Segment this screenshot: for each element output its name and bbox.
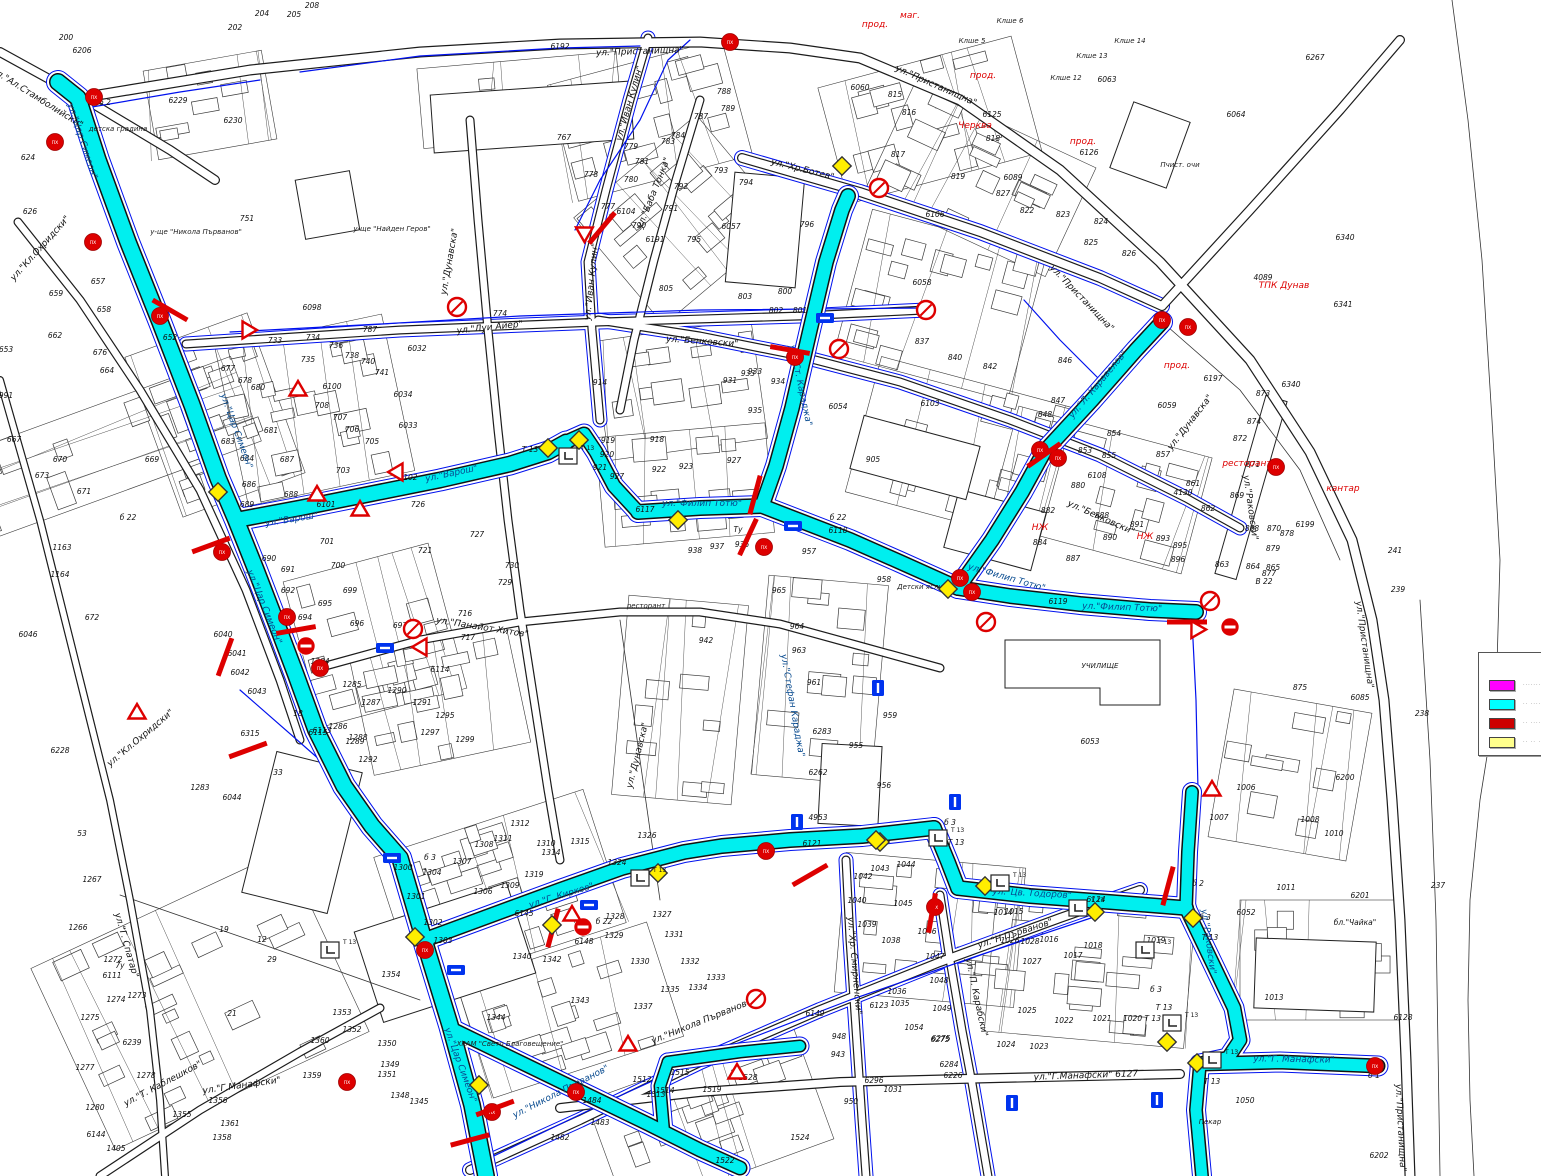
marker-tri <box>620 1036 637 1051</box>
street-name: ул."Г. Манафски" <box>1252 1054 1335 1065</box>
parcel-number: 955 <box>849 741 864 750</box>
utility-line <box>1192 620 1198 790</box>
parcel-number: 1304 <box>422 868 441 877</box>
parcel-number: 741 <box>375 368 389 377</box>
parcel-number: 6098 <box>302 303 321 312</box>
parcel-number: 699 <box>343 586 358 595</box>
parcel-number: 957 <box>802 547 817 556</box>
fitting-box-icon <box>1163 1015 1181 1031</box>
parcel-number: 1353 <box>332 1008 351 1017</box>
hydrant-code: ПХ <box>219 550 225 556</box>
building <box>271 408 295 422</box>
building <box>0 515 2 535</box>
parcel-number: 1344 <box>486 1013 505 1022</box>
valve-diamond-icon <box>1158 1033 1176 1051</box>
parcel-number: 1047 <box>925 952 944 961</box>
no-entry-bar <box>578 926 589 929</box>
parcel-number: 959 <box>883 711 898 720</box>
parcel-number: 1021 <box>1092 1014 1111 1023</box>
marker-hydrant: ПХ <box>1367 1058 1384 1075</box>
parcel-number: 6296 <box>864 1076 883 1085</box>
parcel-number: 708 <box>315 401 330 410</box>
parcel-number: 12 <box>257 935 267 944</box>
parcel-number: 6192 <box>550 42 569 51</box>
parcel-number: 1350 <box>377 1039 396 1048</box>
parcel-number: 18 <box>293 709 303 718</box>
parcel-number: 819 <box>951 172 966 181</box>
building <box>991 290 1022 315</box>
no-entry-bar <box>301 645 312 648</box>
parcel-number: 19 <box>219 925 229 934</box>
lot-line <box>48 958 137 1141</box>
parcel-number: 882 <box>1041 506 1056 515</box>
marker-hydrant: ПХ <box>85 234 102 251</box>
parcel-number: 1301 <box>406 892 425 901</box>
sign-blue-dash <box>380 647 390 649</box>
parcel-number: 1292 <box>358 755 377 764</box>
info-sign-bar <box>954 797 956 807</box>
parcel-number: 1008 <box>1300 815 1319 824</box>
parcel-number: 6144 <box>86 1130 105 1139</box>
marker-noentry2 <box>404 620 422 638</box>
parcel-number: 733 <box>268 336 283 345</box>
parcel-number: 6121 <box>802 839 821 848</box>
building <box>1292 713 1326 734</box>
parcel-number: 943 <box>831 1050 846 1059</box>
major-building <box>1110 102 1190 188</box>
info-sign-bar <box>877 683 879 693</box>
marker-bluebox <box>447 965 465 975</box>
parcel-number: 1011 <box>1276 883 1295 892</box>
sign-blue-dash <box>788 525 798 527</box>
parcel-number: 950 <box>844 1097 859 1106</box>
parcel-number: 6042 <box>230 668 249 677</box>
parcel-number: 717 <box>461 633 476 642</box>
parcel-number: 862 <box>1201 504 1216 513</box>
parcel-number: 1334 <box>688 983 707 992</box>
parcel-number: 726 <box>411 500 426 509</box>
parcel-number: 767 <box>557 133 572 142</box>
parcel-number: 1273 <box>127 991 146 1000</box>
parcel-number: 6239 <box>122 1038 141 1047</box>
parcel-number: 652 <box>163 333 178 342</box>
parcel-number: 6044 <box>222 793 241 802</box>
marker-hydrant: ПХ <box>568 1084 585 1101</box>
fitting-box-icon <box>1069 900 1087 916</box>
building <box>689 384 722 407</box>
parcel-number: 1283 <box>190 783 209 792</box>
parcel-number: 827 <box>996 189 1011 198</box>
poi-label: ресторант <box>1221 459 1272 469</box>
parcel-number: 6199 <box>1295 520 1314 529</box>
poi-label: прод. <box>970 71 996 81</box>
parcel-number: Т 13 <box>522 445 539 454</box>
parcel-number: 857 <box>1156 450 1171 459</box>
parcel-number: 963 <box>792 646 807 655</box>
parcel-number: 1311 <box>493 834 512 843</box>
fitting-code: Т 13 <box>1224 1049 1238 1056</box>
fitting-code: Т 13 <box>950 827 964 834</box>
parcel-number: 1331 <box>664 930 683 939</box>
parcel-number: 29 <box>267 955 277 964</box>
legend-red-label: ·· ···· <box>1523 720 1541 726</box>
parcel-number: 6104 <box>616 207 635 216</box>
building <box>1140 540 1174 566</box>
building <box>866 239 894 256</box>
parcel-number: 1348 <box>390 1091 409 1100</box>
marker-tri <box>1204 781 1221 796</box>
landmark-label: у-ще "Найден Геров" <box>352 225 430 233</box>
parcel-number: 1043 <box>870 864 889 873</box>
building <box>994 969 1025 991</box>
parcel-number: 4130 <box>1173 488 1192 497</box>
parcel-number: 1266 <box>68 923 87 932</box>
parcel-number: 1300 <box>393 863 412 872</box>
parcel-number: 6033 <box>398 421 417 430</box>
hydrant-code: ПХ <box>957 576 963 582</box>
parcel-number: 670 <box>53 455 68 464</box>
parcel-number: 6115 <box>308 728 327 737</box>
parcel-number: 890 <box>1103 533 1118 542</box>
parcel-number: 817 <box>891 150 906 159</box>
parcel-number: 6053 <box>1080 737 1099 746</box>
parcel-number: 239 <box>1391 585 1406 594</box>
parcel-number: 958 <box>877 575 892 584</box>
marker-noentry <box>297 637 315 655</box>
legend-title: ····· <box>1489 663 1541 669</box>
building <box>651 379 684 405</box>
building <box>901 239 926 260</box>
legend-cyan-swatch <box>1489 699 1515 710</box>
fitting-code: Т 13 <box>1157 939 1171 946</box>
parcel-number: 1038 <box>881 936 900 945</box>
parcel-number: 1326 <box>637 831 656 840</box>
parcel-number: 6063 <box>1097 75 1116 84</box>
hydrant-code: ПХ <box>727 40 733 46</box>
building <box>1224 741 1251 762</box>
parcel-number: 1302 <box>423 918 442 927</box>
parcel-number: 1332 <box>680 957 699 966</box>
parcel-number: 727 <box>470 530 485 539</box>
parcel-number: 778 <box>584 170 599 179</box>
marker-whitebox: Т 13 <box>321 939 356 958</box>
parcel-number: 1308 <box>474 840 493 849</box>
legend-red-swatch <box>1489 718 1515 729</box>
fitting-box-icon <box>559 448 577 464</box>
parcel-number: 6032 <box>407 344 426 353</box>
landmark-label: Клше 12 <box>1050 74 1082 82</box>
parcel-number: 6119 <box>1048 597 1067 606</box>
building <box>192 932 223 958</box>
parcel-number: Т 13 <box>948 838 965 847</box>
parcel-number: 1045 <box>893 899 912 908</box>
parcel-number: 691 <box>281 565 295 574</box>
parcel-number: 6100 <box>322 382 341 391</box>
parcel-number: 1018 <box>1083 941 1102 950</box>
parcel-number: 869 <box>1230 491 1245 500</box>
marker-bar <box>791 863 828 887</box>
parcel-number: 1330 <box>630 957 649 966</box>
parcel-number: 238 <box>1415 709 1430 718</box>
parcel-number: 1277 <box>75 1063 94 1072</box>
info-sign-bar <box>1156 1095 1158 1105</box>
building <box>837 608 865 630</box>
parcel-number: 1289 <box>345 737 364 746</box>
street-name: ул."Филип Тотю" <box>661 499 742 509</box>
parcel-number: б 22 <box>830 513 847 522</box>
landmark-label: Клше 5 <box>959 37 986 45</box>
marker-hydrant: ПХ <box>47 134 64 151</box>
parcel-number: 6041 <box>227 649 246 658</box>
landmark-label: у-ще "Никола Първанов" <box>149 228 242 236</box>
building <box>440 674 463 699</box>
parcel-number: 1349 <box>380 1060 399 1069</box>
building <box>975 254 993 270</box>
landmark-label: детска градина <box>88 125 147 133</box>
parcel-number: 781 <box>635 157 649 166</box>
fitting-code: Т 13 <box>1184 1012 1198 1019</box>
parcel-number: 818 <box>986 134 1001 143</box>
parcel-number: 854 <box>1107 429 1122 438</box>
parcel-number: б 3 <box>944 818 956 827</box>
building <box>1277 911 1293 929</box>
building <box>47 471 77 509</box>
marker-noentry2 <box>747 990 765 1008</box>
parcel-number: 826 <box>1122 249 1137 258</box>
warning-triangle-icon <box>620 1036 637 1051</box>
building <box>568 951 584 968</box>
parcel-number: 729 <box>498 578 513 587</box>
info-sign-bar <box>1011 1098 1013 1108</box>
parcel-number: 33 <box>273 768 283 777</box>
parcel-number: 6267 <box>1305 53 1324 62</box>
hydrant-code: ПХ <box>422 948 428 954</box>
street-name: ул."Г.Манафски" 6127 <box>1033 1069 1139 1083</box>
parcel-number: 874 <box>1247 417 1262 426</box>
parcel-number: 921 <box>593 463 607 472</box>
parcel-number: 920 <box>600 450 615 459</box>
building <box>538 978 557 998</box>
parcel-number: 780 <box>624 175 639 184</box>
parcel-number: 673 <box>35 471 50 480</box>
parcel-number: 825 <box>1084 238 1099 247</box>
marker-hydrant: ПХ <box>722 34 739 51</box>
parcel-number: 793 <box>714 166 729 175</box>
parcel-number: 730 <box>505 561 520 570</box>
landmark-label: ресторант <box>626 602 666 610</box>
marker-hydrant: ПХ <box>1268 459 1285 476</box>
marker-noentry2 <box>1201 592 1219 610</box>
parcel-number: 1327 <box>652 910 671 919</box>
parcel-number: 1048 <box>929 976 948 985</box>
parcel-number: 1035 <box>890 999 909 1008</box>
parcel-number: 777 <box>601 202 616 211</box>
parcel-number: 1515 <box>670 1068 689 1077</box>
building <box>164 1086 186 1105</box>
parcel-number: 6283 <box>812 727 831 736</box>
parcel-number: 6085 <box>1350 693 1369 702</box>
parcel-number: 1013 <box>1264 993 1283 1002</box>
building <box>876 345 903 369</box>
parcel-number: 1358 <box>212 1133 231 1142</box>
parcel-number: 672 <box>85 613 100 622</box>
poi-label: НЖ <box>1137 532 1154 542</box>
marker-hydrant: ПХ <box>86 89 103 106</box>
parcel-number: 861 <box>1186 479 1200 488</box>
parcel-number: 855 <box>1102 451 1117 460</box>
legend-yellow-label: ·· ·· · <box>1523 739 1541 745</box>
parcel-number: б 3 <box>424 853 436 862</box>
parcel-number: 853 <box>1078 446 1093 455</box>
parcel-number: 1303 <box>433 936 452 945</box>
parcel-number: 1482 <box>550 1133 569 1142</box>
parcel-number: 695 <box>318 599 333 608</box>
parcel-number: 241 <box>1388 546 1402 555</box>
parcel-number: 6191 <box>645 235 664 244</box>
building <box>1142 498 1165 522</box>
parcel-number: 1324 <box>607 858 626 867</box>
parcel-number: 677 <box>221 364 236 373</box>
parcel-number: 927 <box>610 472 625 481</box>
parcel-number: 823 <box>1056 210 1071 219</box>
parcel-number: 847 <box>1051 396 1066 405</box>
lot-line <box>1225 692 1262 842</box>
parcel-number: 6128 <box>1393 1013 1412 1022</box>
hydrant-code: ПХ <box>761 545 767 551</box>
legend-magenta-label: ·········· <box>1523 682 1541 688</box>
parcel-number: 1267 <box>82 875 101 884</box>
building <box>1313 768 1336 791</box>
building <box>53 949 90 980</box>
parcel-number: 6106 <box>925 210 944 219</box>
parcel-number: 706 <box>345 425 360 434</box>
hydrant-code: ПХ <box>90 240 96 246</box>
poi-label: ТПК Дунав <box>1259 281 1310 291</box>
parcel-number: 1342 <box>542 955 561 964</box>
marker-whitebox: Т 13 <box>1163 1012 1198 1031</box>
marker-bluebox <box>816 313 834 323</box>
parcel-number: 800 <box>778 287 793 296</box>
parcel-number: 734 <box>306 333 321 342</box>
landmark-label: Клше 6 <box>997 17 1024 25</box>
building <box>708 113 730 132</box>
building <box>473 638 498 659</box>
building <box>863 963 886 974</box>
hydrant-code: ПХ <box>969 590 975 596</box>
legend-item-legend-magenta: ·········· <box>1489 680 1541 690</box>
parcel-number: 887 <box>1066 554 1081 563</box>
marker-bar <box>228 741 267 759</box>
parcel-number: 1020 Т 13 <box>1123 1014 1161 1023</box>
parcel-number: 789 <box>721 104 736 113</box>
parcel-number: 735 <box>301 355 316 364</box>
building <box>162 1009 178 1024</box>
parcel-number: 687 <box>280 455 295 464</box>
parcel-number: 6284 <box>939 1060 958 1069</box>
parcel-number: 1290 <box>387 686 406 695</box>
parcel-number: 6103 <box>920 399 939 408</box>
marker-diamond <box>1158 1033 1176 1051</box>
hydrant-code: ПХ <box>91 95 97 101</box>
parcel-number: 919 <box>601 436 616 445</box>
marker-bluebox <box>383 853 401 863</box>
parcel-number: 1040 <box>847 896 866 905</box>
hydrant-code: ПХ <box>792 355 798 361</box>
parcel-number: 6315 <box>240 729 259 738</box>
landmark-label: Пчист. очи <box>1160 161 1200 169</box>
parcel-number: 965 <box>772 586 787 595</box>
parcel-number: 6126 <box>1079 148 1098 157</box>
parcel-number: 1319 <box>524 870 543 879</box>
street-name: ул."Дунавска" <box>439 228 461 297</box>
major-building <box>430 81 634 153</box>
landmark-label: ХРАМ "Свето Благовещение" <box>456 1040 564 1048</box>
parcel-number: 795 <box>687 235 702 244</box>
poi-label: прод. <box>862 20 888 30</box>
landmark-label: Клше 14 <box>1114 37 1145 45</box>
parcel-number: 716 <box>458 609 473 618</box>
parcel-number: 21 <box>227 1009 237 1018</box>
parcel-number: 205 <box>287 10 302 19</box>
parcel-number: 1355 <box>172 1110 191 1119</box>
parcel-number: 6043 <box>247 687 266 696</box>
parcel-number: 701 <box>320 537 334 546</box>
road-surface <box>1162 40 1400 306</box>
parcel-number: 6054 <box>828 402 847 411</box>
parcel-number: 1027 <box>1022 957 1041 966</box>
parcel-number: 200 <box>59 33 74 42</box>
parcel-number: 6034 <box>393 390 412 399</box>
map-legend: ····· ············ ······ ······ ·· · <box>1478 652 1541 756</box>
parcel-number: 1519 <box>702 1085 721 1094</box>
parcel-number: 658 <box>97 305 112 314</box>
road-surface <box>0 380 165 1176</box>
parcel-number: 779 <box>624 142 639 151</box>
building <box>1067 986 1102 1006</box>
building <box>953 51 988 69</box>
hydrant-code: ПХ <box>317 666 323 672</box>
parcel-number: 1360 <box>310 1036 329 1045</box>
marker-hydrant: ПХ <box>756 539 773 556</box>
building <box>628 1142 650 1167</box>
building <box>1106 972 1140 988</box>
marker-hydrant: ПХ <box>339 1074 356 1091</box>
marker-bluebox <box>580 900 598 910</box>
map-canvas[interactable]: 2002022042052086206623062297516192619162… <box>0 0 1541 1176</box>
parcel-number: 1340 <box>512 952 531 961</box>
fitting-box-icon <box>991 875 1009 891</box>
closure-bar-icon <box>1167 620 1207 625</box>
parcel-number: 792 <box>674 182 689 191</box>
closure-bar-icon <box>737 518 758 556</box>
poi-label: прод. <box>1164 361 1190 371</box>
parcel-number: 721 <box>418 546 432 555</box>
hydrant-code: ПХ <box>1037 448 1043 454</box>
valve-diamond-icon <box>833 157 851 175</box>
parcel-number: б 2 <box>1192 879 1204 888</box>
parcel-number: 6200 <box>1335 773 1354 782</box>
parcel-number: 788 <box>717 87 732 96</box>
building <box>703 720 720 731</box>
parcel-number: 1164 <box>50 570 69 579</box>
parcel-number: 787 <box>694 112 709 121</box>
parcel-number: 864 <box>1246 562 1261 571</box>
building <box>683 267 707 290</box>
parcel-number: 794 <box>739 178 754 187</box>
marker-hydrant: ПХ <box>417 942 434 959</box>
parcel-number: 202 <box>228 23 243 32</box>
marker-bar <box>1167 620 1207 625</box>
